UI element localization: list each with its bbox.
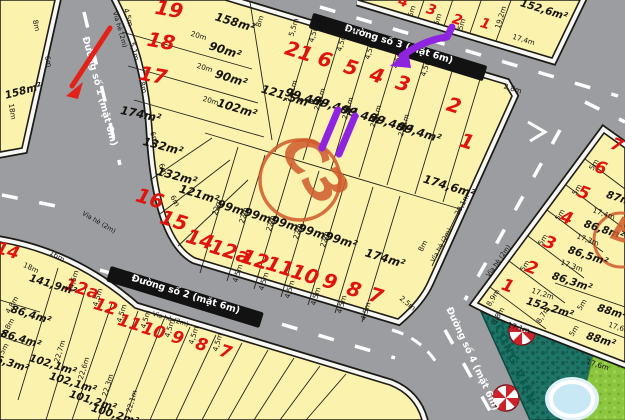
plot-number: 18 — [145, 27, 177, 55]
map-canvas: 1918172165432116151412a121110987158m²90m… — [0, 0, 625, 420]
swimming-pool — [545, 377, 599, 420]
land-plot-map: 1918172165432116151412a121110987158m²90m… — [0, 0, 625, 420]
